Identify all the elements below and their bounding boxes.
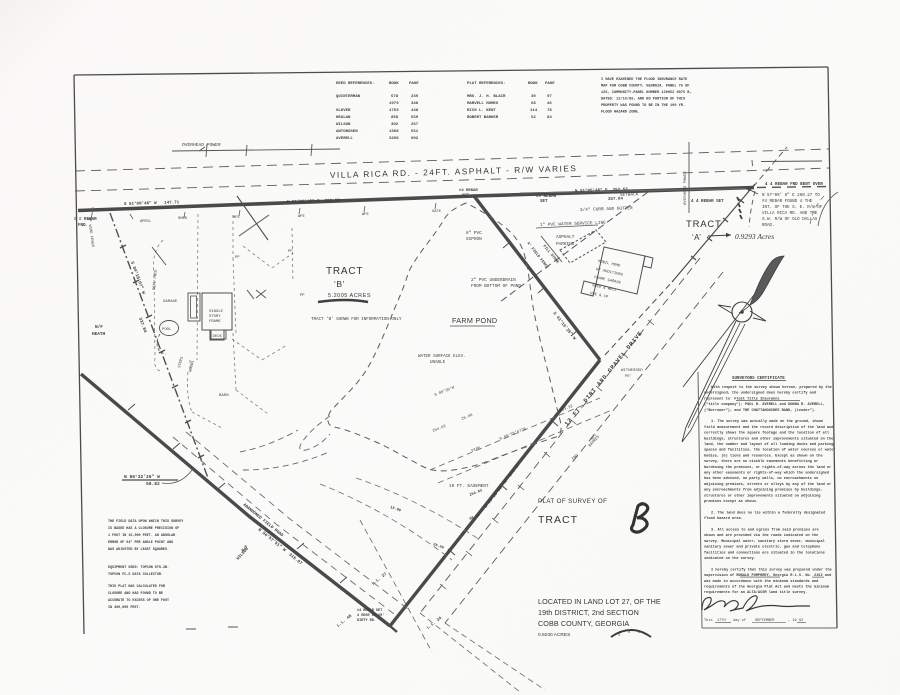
svg-text:has been advised, no party wal: has been advised, no party walls, no enc… bbox=[704, 476, 818, 481]
svg-text:858: 858 bbox=[391, 116, 399, 120]
svg-text:WATER SURFACE ELEV.: WATER SURFACE ELEV. bbox=[418, 355, 466, 359]
svg-text:S.W. R/W OF OLD DALLAS: S.W. R/W OF OLD DALLAS bbox=[762, 217, 818, 222]
svg-text:ANTONSSEN: ANTONSSEN bbox=[336, 130, 358, 134]
svg-text:CLOSURE AND HAS FOUND TO BE: CLOSURE AND HAS FOUND TO BE bbox=[108, 592, 163, 596]
svg-text:APRIL: APRIL bbox=[140, 220, 152, 224]
svg-text:EQUIPMENT USED: TOPCON GTS-3B.: EQUIPMENT USED: TOPCON GTS-3B. bbox=[108, 566, 169, 570]
svg-text:0.9230 ACRES: 0.9230 ACRES bbox=[538, 632, 570, 638]
svg-text:VILLA RICA RD. AND THE: VILLA RICA RD. AND THE bbox=[762, 212, 818, 216]
svg-text:OVERHEAD POWER: OVERHEAD POWER bbox=[182, 142, 221, 148]
svg-text:OVERHEAD POWER: OVERHEAD POWER bbox=[684, 171, 688, 205]
svg-text:84: 84 bbox=[547, 116, 552, 120]
svg-text:DECK: DECK bbox=[213, 335, 223, 339]
svg-text:448: 448 bbox=[411, 109, 419, 113]
svg-text:N 86°32’26” W: N 86°32’26” W bbox=[124, 474, 160, 480]
svg-text:correctly shows the square foo: correctly shows the square footage and t… bbox=[704, 431, 830, 436]
svg-text:STORY: STORY bbox=[209, 315, 221, 319]
svg-text:3. All access to and egress f: 3. All access to and egress from said pr… bbox=[711, 528, 819, 533]
svg-text:N 57°09’ 8” E 260.27 TO: N 57°09’ 8” E 260.27 TO bbox=[762, 193, 820, 198]
svg-text:267: 267 bbox=[411, 123, 419, 127]
svg-text:2: 2 bbox=[638, 631, 640, 635]
svg-text:8” PVC: 8” PVC bbox=[466, 231, 482, 236]
svg-text:PP: PP bbox=[235, 256, 240, 260]
svg-text:BARN: BARN bbox=[219, 394, 229, 398]
svg-text:#4 REBAR FOUND 4 THE: #4 REBAR FOUND 4 THE bbox=[762, 200, 813, 204]
svg-text:day of: day of bbox=[733, 618, 746, 623]
svg-text:WILSON: WILSON bbox=[336, 123, 351, 127]
svg-text:premises except as shown.: premises except as shown. bbox=[704, 499, 758, 504]
svg-text:THIS PLAT HAS CALCULATED FOR: THIS PLAT HAS CALCULATED FOR bbox=[108, 585, 166, 589]
svg-text:sanitary sewer and private ele: sanitary sewer and private electric, gas… bbox=[704, 545, 820, 550]
svg-text:PE’: PE’ bbox=[625, 374, 632, 379]
svg-text:#4 REBAR: #4 REBAR bbox=[459, 189, 478, 193]
svg-text:FRAME: FRAME bbox=[209, 320, 221, 324]
svg-text:adjoining premises, streets or: adjoining premises, streets or alleys by… bbox=[704, 482, 831, 487]
svg-text:MRS. J. H. BLAIR: MRS. J. H. BLAIR bbox=[467, 95, 506, 99]
svg-text:survey, there are no visible e: survey, there are no visible easements b… bbox=[704, 459, 818, 464]
svg-text:52: 52 bbox=[531, 116, 536, 120]
svg-text:COBB COUNTY, GEORGIA: COBB COUNTY, GEORGIA bbox=[538, 619, 629, 628]
svg-text:BOOK: BOOK bbox=[528, 82, 538, 86]
svg-text:WAS ADJUSTED BY LEAST SQUARES.: WAS ADJUSTED BY LEAST SQUARES. bbox=[108, 548, 169, 552]
svg-text:FROM BOTTOM OF POND: FROM BOTTOM OF POND bbox=[471, 284, 521, 289]
svg-text:302: 302 bbox=[391, 123, 399, 127]
svg-text:DIRTY RD.: DIRTY RD. bbox=[357, 619, 376, 623]
svg-text:# # REBAR: # # REBAR bbox=[74, 218, 97, 222]
svg-text:8: 8 bbox=[628, 631, 630, 635]
svg-text:IS BASED HAS A CLOSURE PRECISI: IS BASED HAS A CLOSURE PRECISION OF bbox=[108, 527, 179, 531]
svg-text:FLOOD HAZARD ZONE.: FLOOD HAZARD ZONE. bbox=[601, 111, 640, 115]
svg-text:TRACT: TRACT bbox=[326, 266, 363, 277]
svg-text:, 19: , 19 bbox=[788, 619, 797, 623]
svg-text:N/F: N/F bbox=[95, 325, 103, 330]
svg-text:With respect to the survey sho: With respect to the survey shown hereon,… bbox=[711, 385, 832, 390]
svg-text:any other easements or rights-: any other easements or rights-of-way whi… bbox=[704, 471, 829, 476]
svg-text:SETBACK: SETBACK bbox=[620, 192, 639, 198]
svg-text:357.84: 357.84 bbox=[608, 198, 624, 202]
svg-text:ROAD.: ROAD. bbox=[762, 224, 775, 228]
svg-text:1759: 1759 bbox=[389, 109, 399, 113]
svg-text:MAP FOR COBB COUNTY, GEORGIA.: MAP FOR COBB COUNTY, GEORGIA. PANEL 75 O… bbox=[601, 85, 689, 89]
svg-text:2. The land does no lie withi: 2. The land does no lie within a federal… bbox=[711, 510, 825, 515]
svg-text:FARM POND: FARM POND bbox=[452, 316, 497, 325]
svg-text:shown and are provided via the: shown and are provided via the roads ind… bbox=[704, 533, 818, 538]
svg-text:114: 114 bbox=[530, 109, 538, 113]
svg-text:INT. OF THE S. E. R/W OF: INT. OF THE S. E. R/W OF bbox=[762, 205, 823, 210]
svg-text:land, the number and layout of: land, the number and layout of all loadi… bbox=[704, 442, 833, 447]
svg-text:undersigned, the undersigned d: undersigned, the undersigned does hereby… bbox=[704, 391, 816, 396]
svg-text:WFE: WFE bbox=[298, 215, 306, 219]
svg-text:indicated on the survey.: indicated on the survey. bbox=[704, 556, 756, 561]
svg-text:bodies, (b) liens and resource: bodies, (b) liens and resources. Except … bbox=[704, 453, 823, 458]
svg-text:structures or other improvemen: structures or other improvements situate… bbox=[704, 493, 820, 498]
svg-text:4: 4 bbox=[618, 634, 620, 638]
svg-text:UNABLE: UNABLE bbox=[430, 361, 446, 365]
svg-text:flood hazard area.: flood hazard area. bbox=[704, 516, 743, 521]
svg-text:LOCATED IN LAND LOT 27, OF THE: LOCATED IN LAND LOT 27, OF THE bbox=[538, 597, 661, 606]
svg-text:SET: SET bbox=[462, 194, 470, 198]
svg-text:348: 348 bbox=[411, 102, 419, 106]
svg-text:19th DISTRICT, 2nd SECTION: 19th DISTRICT, 2nd SECTION bbox=[538, 608, 639, 617]
svg-text:PARKING: PARKING bbox=[556, 242, 575, 247]
svg-text:10 FT. EASEMENT: 10 FT. EASEMENT bbox=[449, 484, 489, 489]
svg-text:HEATH: HEATH bbox=[92, 332, 106, 337]
svg-text:SET: SET bbox=[540, 200, 548, 204]
svg-text:68: 68 bbox=[531, 102, 536, 106]
svg-text:ACCURATE TO EXCESS OF ONE FOOT: ACCURATE TO EXCESS OF ONE FOOT bbox=[108, 599, 169, 603]
svg-text:MARVELL HOMES: MARVELL HOMES bbox=[467, 102, 499, 106]
svg-text:578: 578 bbox=[391, 95, 399, 99]
svg-text:requirements for an ALTA/ACSM: requirements for an ALTA/ACSM land title… bbox=[704, 590, 808, 595]
svg-text:‘A’: ‘A’ bbox=[692, 233, 701, 242]
svg-text:WITNESSED: WITNESSED bbox=[621, 369, 643, 373]
svg-text:1. The survey was actually ma: 1. The survey was actually made on the g… bbox=[711, 419, 823, 424]
svg-text:any encroachments from adjoini: any encroachments from adjoining premise… bbox=[704, 488, 823, 493]
svg-text:PLAT REFERENCES:: PLAT REFERENCES: bbox=[467, 82, 505, 86]
svg-text:SIPHON: SIPHON bbox=[466, 237, 482, 242]
svg-text:spaces and facilities, the loc: spaces and facilities, the location of w… bbox=[704, 448, 836, 453]
svg-text:ASPHALT: ASPHALT bbox=[556, 235, 575, 240]
svg-text:SHED: SHED bbox=[178, 217, 188, 221]
svg-text:PP: PP bbox=[300, 294, 305, 298]
svg-text:This: This bbox=[704, 618, 713, 623]
svg-text:(“title company”); PAUL R. AVE: (“title company”); PAUL R. AVERELL and D… bbox=[704, 402, 825, 407]
svg-text:burdening the premises, or rig: burdening the premises, or rights-of-way… bbox=[704, 465, 831, 470]
svg-text:551: 551 bbox=[411, 130, 419, 134]
svg-text:FND.: FND. bbox=[78, 224, 88, 228]
svg-text:BOOK: BOOK bbox=[389, 82, 399, 86]
svg-text:I HAVE EXAMINED THE FLOOD INSU: I HAVE EXAMINED THE FLOOD INSURANCE RATE bbox=[601, 78, 688, 82]
svg-text:GATE: GATE bbox=[432, 210, 442, 214]
svg-text:buildings, structures and othe: buildings, structures and other improvem… bbox=[704, 436, 833, 441]
svg-text:3208: 3208 bbox=[389, 137, 399, 141]
svg-text:MFE: MFE bbox=[233, 216, 241, 220]
svg-text:PAGE: PAGE bbox=[545, 82, 555, 86]
svg-text:DEED REFERENCES:: DEED REFERENCES: bbox=[336, 82, 374, 86]
svg-text:RICH L. KENT: RICH L. KENT bbox=[467, 109, 496, 113]
svg-text:4 4 REBAR SET: 4 4 REBAR SET bbox=[691, 200, 724, 204]
svg-text:IN 400,000 FEET.: IN 400,000 FEET. bbox=[108, 606, 141, 610]
svg-text:QUINTERMAN: QUINTERMAN bbox=[336, 95, 361, 99]
svg-text:THE FIELD DATA UPON WHICH THIS: THE FIELD DATA UPON WHICH THIS SURVEY bbox=[108, 520, 184, 524]
svg-text:WFE: WFE bbox=[362, 213, 370, 217]
svg-text:GARAGE: GARAGE bbox=[163, 300, 178, 304]
svg-text:facilities and connections are: facilities and connections are situated … bbox=[704, 550, 825, 555]
svg-text:PROPERTY WAS FOUND TO BE IN TH: PROPERTY WAS FOUND TO BE IN THE 100 YR. bbox=[601, 104, 685, 108]
svg-text:58.82: 58.82 bbox=[146, 481, 160, 487]
svg-text:SINGLE: SINGLE bbox=[209, 310, 224, 314]
svg-text:TRACT: TRACT bbox=[686, 219, 722, 230]
svg-text:I hereby certify that this sur: I hereby certify that this survey was pr… bbox=[711, 567, 832, 572]
svg-text:ERROR OF 04” PER ANGLE POINT A: ERROR OF 04” PER ANGLE POINT AND bbox=[108, 540, 173, 545]
svg-text:1 FOOT IN 15,000 FEET. AN ANGU: 1 FOOT IN 15,000 FEET. AN ANGULAR bbox=[108, 534, 176, 538]
svg-text:2” PVC UNDERDRAIN: 2” PVC UNDERDRAIN bbox=[471, 278, 516, 283]
svg-text:(“Borrower”); and THE CHATTAHO: (“Borrower”); and THE CHATTAHOOCHEE BANK… bbox=[704, 408, 816, 413]
svg-text:PP: PP bbox=[288, 250, 293, 254]
svg-text:TOPCON FC-5 DATA COLLECTOR.: TOPCON FC-5 DATA COLLECTOR. bbox=[108, 573, 163, 577]
svg-text:‘B’: ‘B’ bbox=[334, 279, 345, 289]
svg-text:239: 239 bbox=[411, 95, 419, 99]
svg-text:TRACT: TRACT bbox=[538, 514, 578, 526]
svg-text:002: 002 bbox=[411, 137, 419, 141]
svg-text:PLAT OF SURVEY OF: PLAT OF SURVEY OF bbox=[538, 498, 607, 505]
svg-text:AVERELL: AVERELL bbox=[336, 137, 353, 141]
svg-text:ROBERT BARKER: ROBERT BARKER bbox=[467, 116, 499, 120]
svg-text:0.9293 Acres: 0.9293 Acres bbox=[735, 232, 774, 241]
svg-text:5.2005 ACRES: 5.2005 ACRES bbox=[328, 293, 371, 299]
svg-text:GLOVER: GLOVER bbox=[336, 109, 351, 113]
svg-text:1308: 1308 bbox=[389, 130, 399, 134]
svg-text:46: 46 bbox=[547, 102, 552, 106]
svg-text:PAGE: PAGE bbox=[409, 82, 419, 86]
svg-text:## REBAR: ## REBAR bbox=[536, 195, 557, 199]
svg-text:survey. Municipal water, sani: survey. Municipal water, sanitary storm … bbox=[704, 539, 826, 544]
svg-text:#4 REBAR SET: #4 REBAR SET bbox=[357, 609, 382, 613]
svg-text:was made in accordance with th: was made in accordance with the minimum … bbox=[704, 579, 818, 584]
svg-text:TRACT ‘B’ SHOWN FOR INFORMATIO: TRACT ‘B’ SHOWN FOR INFORMATION ONLY bbox=[311, 317, 402, 322]
svg-text:30: 30 bbox=[531, 95, 536, 99]
svg-text:78: 78 bbox=[547, 109, 552, 113]
svg-text:4 EDGE OF 30’: 4 EDGE OF 30’ bbox=[357, 613, 384, 618]
svg-text:97: 97 bbox=[547, 95, 552, 99]
svg-text:559: 559 bbox=[411, 116, 419, 120]
svg-text:field measurement and the reco: field measurement and the record descrip… bbox=[704, 425, 833, 430]
svg-text:1979: 1979 bbox=[389, 102, 399, 106]
svg-text:DATED: 12/16/80, AND NO PORTIO: DATED: 12/16/80, AND NO PORTION OF THIS bbox=[601, 97, 686, 102]
svg-text:POOL: POOL bbox=[162, 328, 172, 332]
svg-text:HEALAN: HEALAN bbox=[336, 116, 351, 120]
svg-text:125, COMMUNITY-PANEL NUMBER 13: 125, COMMUNITY-PANEL NUMBER 130052 0075 … bbox=[601, 91, 692, 95]
svg-text:requirements of the Georgia Pl: requirements of the Georgia Plat Act and… bbox=[704, 585, 830, 590]
